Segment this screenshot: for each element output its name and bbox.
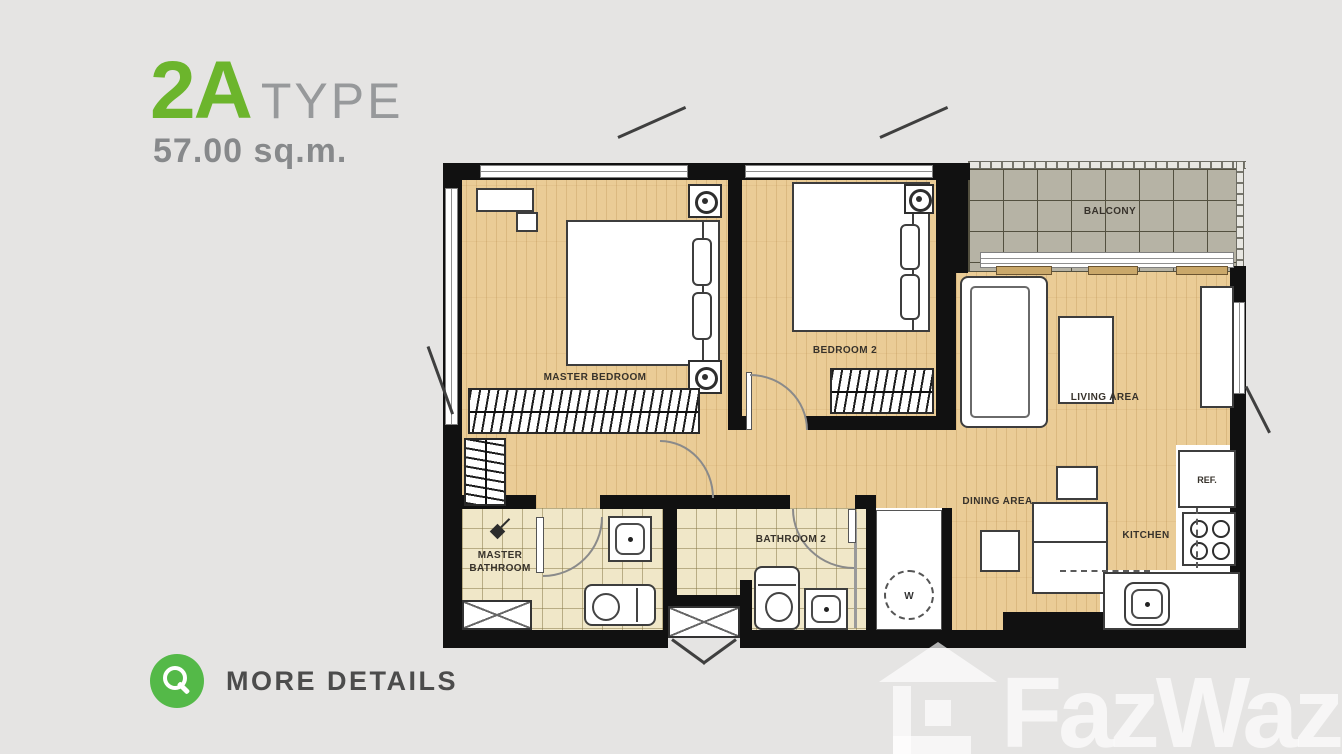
- open-window-panel-right: [1245, 386, 1271, 434]
- unit-type-line: 2A TYPE: [150, 52, 403, 130]
- more-details-button[interactable]: MORE DETAILS: [150, 654, 458, 708]
- wall-master-bedroom2-divider: [728, 163, 742, 430]
- floorplan-image: 2A TYPE 57.00 sq.m.: [0, 0, 1342, 754]
- balcony-planter: [996, 266, 1052, 275]
- window-living-right: [1233, 302, 1245, 394]
- room-label-master-bedroom: MASTER BEDROOM: [530, 372, 660, 385]
- bathroom2-sink: [804, 588, 848, 630]
- window-master-bedroom-left: [445, 188, 458, 425]
- magnifier-icon: [150, 654, 204, 708]
- kitchen-sink: [1124, 582, 1170, 626]
- room-label-master-bathroom: MASTER BATHROOM: [458, 550, 542, 575]
- window-bedroom2-top: [745, 165, 933, 178]
- wall-bedroom2-bottom: [806, 416, 936, 430]
- wall-kitchen-bottom-thick: [1003, 612, 1103, 630]
- unit-type-code: 2A: [150, 52, 251, 130]
- shower-tray: [462, 600, 532, 630]
- master-bedroom-console: [476, 188, 534, 212]
- unit-area: 57.00 sq.m.: [153, 132, 403, 171]
- coffee-table: [1058, 316, 1114, 404]
- entry-door-swing-line: [671, 638, 706, 665]
- room-label-bedroom2: BEDROOM 2: [795, 345, 895, 358]
- unit-type-word: TYPE: [261, 72, 404, 130]
- brand-name: FazWaz: [1001, 672, 1340, 754]
- burner: [1190, 542, 1208, 560]
- burner: [1212, 520, 1230, 538]
- washing-machine: W: [884, 570, 934, 620]
- floor-plan: REF. W MASTE: [440, 140, 1262, 652]
- dining-chair: [1056, 466, 1098, 500]
- dining-table: [1032, 502, 1108, 594]
- master-bedroom-console-box: [516, 212, 538, 232]
- bathroom2-toilet: [754, 566, 800, 630]
- stove: [1182, 512, 1236, 566]
- brand-watermark: FazWaz: [879, 642, 1340, 754]
- room-label-dining-area: DINING AREA: [935, 496, 1060, 509]
- house-logo-icon: [879, 642, 997, 754]
- wall-balcony-corner: [936, 163, 968, 273]
- master-wardrobe: [468, 388, 700, 434]
- wall-washer-left: [866, 508, 876, 630]
- entry-door: [668, 606, 740, 638]
- burner: [1190, 520, 1208, 538]
- window-master-bedroom-top: [480, 165, 688, 178]
- master-bath-toilet: [584, 584, 656, 626]
- wall-entry-right-stub: [740, 580, 752, 630]
- open-window-panel-top-right: [879, 106, 948, 139]
- unit-type-header: 2A TYPE 57.00 sq.m.: [150, 52, 403, 171]
- room-label-bathroom2: BATHROOM 2: [728, 534, 854, 547]
- balcony-planter: [1088, 266, 1138, 275]
- dining-chair: [980, 530, 1020, 572]
- refrigerator: REF.: [1178, 450, 1236, 508]
- more-details-label: MORE DETAILS: [226, 666, 458, 697]
- room-label-living-area: LIVING AREA: [1040, 392, 1170, 405]
- pillow: [900, 274, 920, 320]
- room-label-balcony: BALCONY: [1040, 206, 1180, 219]
- master-bath-sink: [608, 516, 652, 562]
- balcony-railing-right: [1236, 161, 1244, 272]
- pillow: [900, 224, 920, 270]
- wall-bedroom2-living-divider: [936, 270, 956, 430]
- open-window-panel-top-left: [617, 106, 686, 139]
- ac-unit: [904, 184, 934, 214]
- tv-console: [1200, 286, 1234, 408]
- washer-label: W: [886, 572, 932, 622]
- wall-bottom-left: [443, 630, 668, 648]
- burner: [1212, 542, 1230, 560]
- upper-cabinet-dashed-line: [1196, 508, 1198, 568]
- entry-door-swing-line: [702, 638, 737, 665]
- wall-washer-right: [942, 508, 952, 630]
- upper-cabinet-dashed-line: [1060, 570, 1150, 572]
- bedroom2-wardrobe: [830, 368, 934, 414]
- master-wardrobe-side: [464, 438, 506, 506]
- sofa: [960, 276, 1048, 428]
- refrigerator-label: REF.: [1180, 452, 1234, 485]
- pillow: [692, 238, 712, 286]
- balcony-railing-top: [968, 161, 1246, 169]
- wall-bathroom-top-c: [855, 495, 876, 509]
- room-label-kitchen: KITCHEN: [1106, 530, 1186, 543]
- balcony-planter: [1176, 266, 1228, 275]
- pillow: [692, 292, 712, 340]
- ac-unit: [688, 184, 722, 218]
